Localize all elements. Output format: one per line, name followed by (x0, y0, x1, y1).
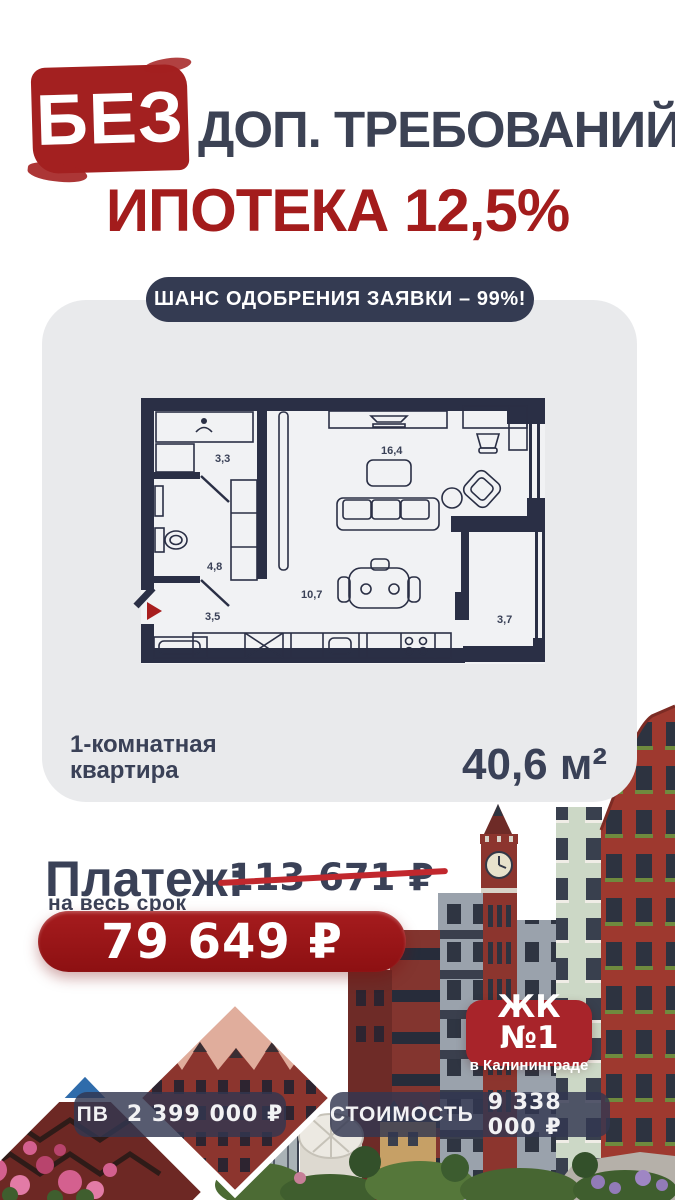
highlight-text: БЕЗ (35, 76, 185, 162)
apartment-type-line1: 1-комнатная (70, 732, 217, 758)
mortgage-rate-title: ИПОТЕКА 12,5% (0, 176, 675, 245)
project-name: ЖК №1 (466, 992, 592, 1054)
apartment-area: 40,6 м² (462, 740, 607, 790)
room-label-living: 16,4 (381, 445, 403, 457)
apartment-card: 3,3 16,4 4,8 10,7 3,5 3,7 1-комнатная кв… (42, 300, 637, 802)
project-location: в Калининграде (470, 1057, 589, 1074)
header-title: ДОП. ТРЕБОВАНИЙ (198, 100, 675, 159)
mortgage-ad-poster: БЕЗ ДОП. ТРЕБОВАНИЙ ИПОТЕКА 12,5% ШАНС О… (0, 0, 675, 1200)
cost-bar: СТОИМОСТЬ 9 338 000 ₽ (330, 1092, 610, 1137)
room-label-hallway: 3,5 (205, 611, 220, 623)
no-extra-requirements-highlight: БЕЗ (31, 64, 190, 174)
floorplan: 3,3 16,4 4,8 10,7 3,5 3,7 (133, 390, 553, 668)
down-payment-value: 2 399 000 ₽ (127, 1102, 283, 1127)
down-payment-bar: ПВ 2 399 000 ₽ (74, 1092, 286, 1137)
down-payment-label: ПВ (77, 1103, 109, 1127)
room-label-cabinet: 3,3 (215, 453, 230, 465)
project-badge: ЖК №1 в Калининграде (466, 1000, 592, 1066)
apartment-type-line2: квартира (70, 758, 217, 784)
cost-label: СТОИМОСТЬ (330, 1103, 474, 1127)
old-payment-amount: 113 671 ₽ (228, 856, 434, 899)
new-payment-amount: 79 649 ₽ (38, 911, 406, 972)
cost-value: 9 338 000 ₽ (488, 1090, 610, 1140)
room-label-bathroom: 4,8 (207, 561, 222, 573)
approval-chance-badge: ШАНС ОДОБРЕНИЯ ЗАЯВКИ – 99%! (146, 277, 534, 322)
room-label-kitchen-living: 10,7 (301, 589, 322, 601)
room-label-balcony: 3,7 (497, 614, 512, 626)
apartment-type: 1-комнатная квартира (70, 732, 217, 784)
